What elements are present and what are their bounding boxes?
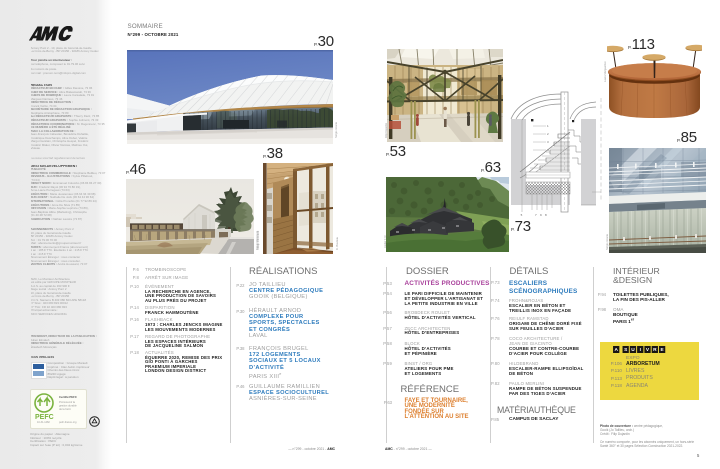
- svg-text:pefc-france.org: pefc-france.org: [59, 420, 77, 424]
- svg-text:de la forêt: de la forêt: [59, 407, 71, 411]
- svg-text:9: 9: [540, 213, 542, 216]
- svg-text:E: E: [661, 347, 664, 353]
- svg-text:Promouvoir la: Promouvoir la: [59, 400, 76, 404]
- svg-text:S: S: [624, 347, 627, 353]
- svg-text:gestion durable: gestion durable: [59, 403, 77, 407]
- svg-text:PEFC: PEFC: [35, 414, 54, 421]
- svg-text:R: R: [653, 347, 657, 353]
- svg-text:10-31-1482: 10-31-1482: [37, 421, 50, 424]
- svg-text:8: 8: [545, 213, 547, 216]
- svg-text:5: 5: [521, 213, 523, 216]
- svg-text:Certifié PEFC: Certifié PEFC: [59, 395, 77, 399]
- svg-text:A: A: [614, 347, 618, 353]
- svg-text:U: U: [631, 347, 635, 353]
- svg-text:7: 7: [535, 213, 537, 216]
